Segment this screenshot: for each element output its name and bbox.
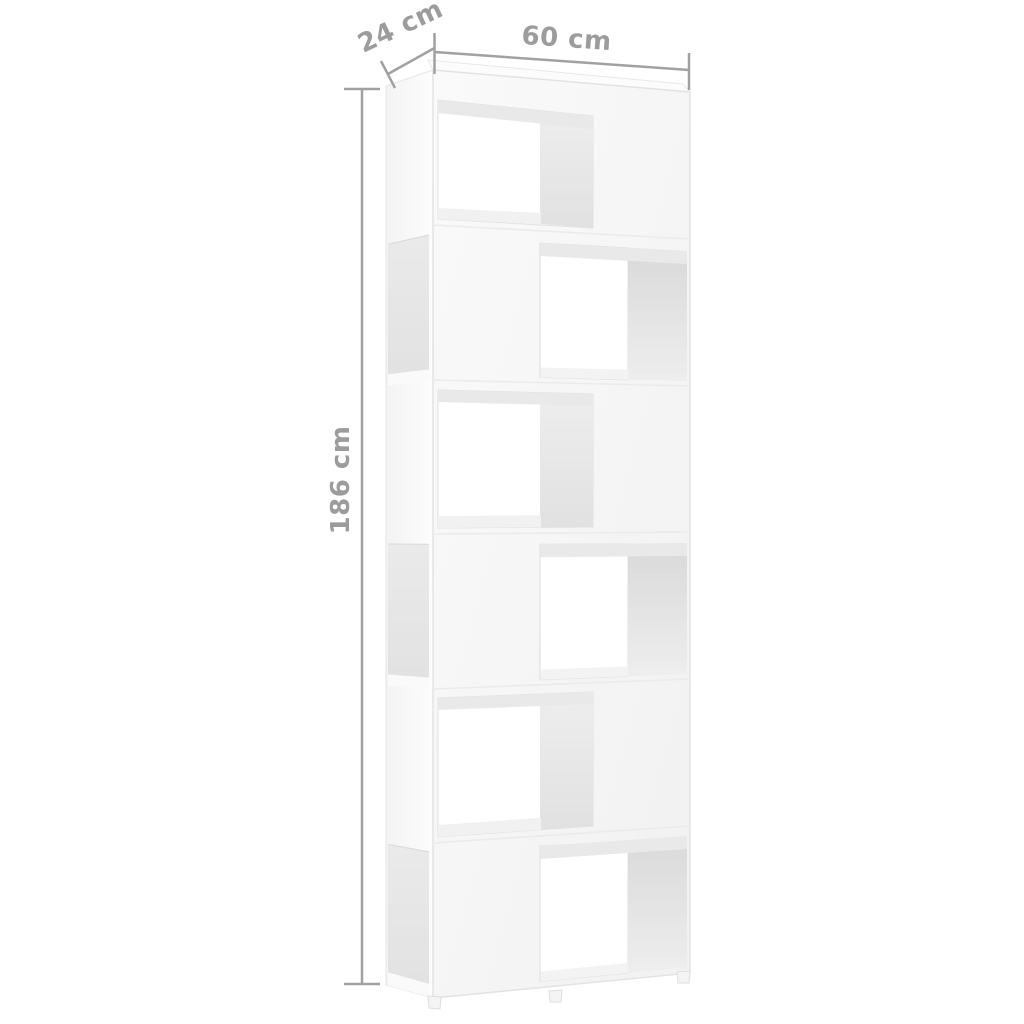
compartment-level-4-opening-right (540, 543, 687, 680)
compartment-interior-right-wall (628, 543, 687, 676)
compartment-interior-right-wall (540, 692, 593, 830)
compartment-level-3-opening-left (438, 390, 593, 528)
compartment-level-2-opening-right (540, 243, 687, 381)
side-opening-shading (388, 845, 429, 984)
compartment-level-1-opening-left (438, 100, 593, 228)
bookshelf (386, 60, 690, 1009)
side-opening-level-4 (388, 544, 429, 689)
side-opening-level-2 (388, 235, 429, 385)
compartment-opening (540, 842, 628, 982)
height-dimension (344, 89, 380, 984)
compartment-opening (540, 243, 628, 380)
depth-dimension-left-tick (381, 61, 395, 88)
compartment-interior-bottom-shelf (438, 515, 541, 528)
compartment-interior-right-wall (628, 248, 687, 381)
shelf-foot (677, 971, 690, 983)
side-opening-level-6 (388, 845, 429, 997)
compartment-level-6-opening-right (540, 836, 687, 982)
bookshelf-dimension-diagram: 186 cm 60 cm 24 cm (0, 0, 1024, 1024)
depth-dimension-line (388, 48, 435, 74)
compartment-interior-right-wall (628, 836, 687, 973)
product-dimension-image: 186 cm 60 cm 24 cm (0, 0, 1024, 1024)
shelf-foot (549, 990, 562, 1002)
side-opening-shading (388, 544, 429, 678)
shelf-foot (428, 996, 441, 1009)
compartment-interior-top-shading (540, 543, 687, 557)
width-dimension-label: 60 cm (520, 21, 612, 57)
compartment-opening (540, 544, 628, 680)
compartment-interior-right-wall (540, 393, 593, 528)
height-dimension-label: 186 cm (326, 426, 356, 535)
compartment-level-5-opening-left (438, 692, 593, 837)
side-opening-shading (388, 235, 429, 374)
